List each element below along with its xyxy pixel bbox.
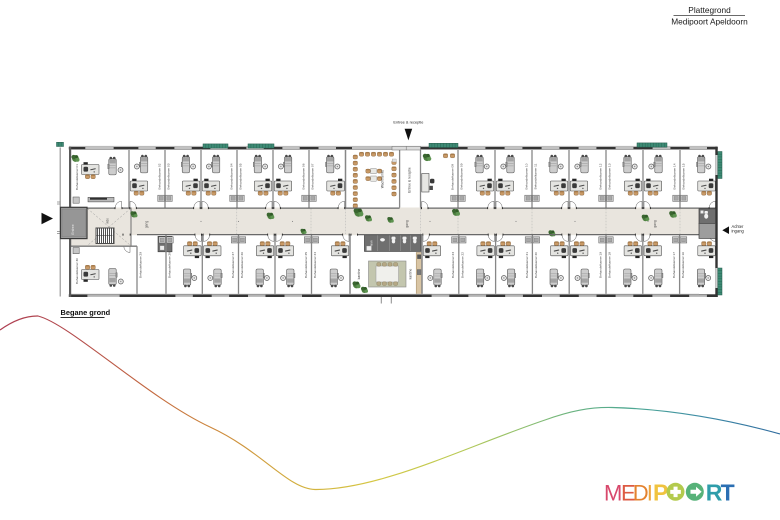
svg-text:T: T — [721, 480, 735, 506]
svg-text:Behandelkamer 08: Behandelkamer 08 — [451, 164, 455, 190]
svg-text:vide: vide — [106, 218, 110, 224]
svg-text:gang: gang — [145, 221, 149, 229]
svg-text:Behandelkamer 21: Behandelkamer 21 — [525, 252, 529, 278]
svg-text:Behandelkamer 27: Behandelkamer 27 — [231, 252, 235, 278]
svg-text:Behandelkamer 12: Behandelkamer 12 — [598, 163, 602, 189]
svg-text:Behandelkamer 28: Behandelkamer 28 — [168, 252, 172, 278]
svg-text:Behandelkamer 23: Behandelkamer 23 — [451, 252, 455, 278]
svg-text:MIVA: MIVA — [371, 240, 374, 246]
svg-text:Behandelkamer 14: Behandelkamer 14 — [672, 163, 676, 189]
svg-text:I: I — [647, 481, 653, 506]
svg-text:Behandelkamer 19: Behandelkamer 19 — [598, 252, 602, 278]
svg-text:Behandelkamer 02: Behandelkamer 02 — [157, 163, 161, 189]
svg-text:Behandelkamer 05: Behandelkamer 05 — [239, 163, 243, 189]
svg-text:Begane grond: Begane grond — [61, 308, 111, 317]
svg-text:Behandelkamer 24: Behandelkamer 24 — [313, 252, 317, 278]
svg-text:Behandelkamer 15: Behandelkamer 15 — [682, 163, 686, 189]
svg-text:Behandelkamer 01: Behandelkamer 01 — [75, 164, 79, 190]
svg-text:gang: gang — [653, 220, 657, 228]
svg-text:Behandelkamer 30: Behandelkamer 30 — [75, 258, 79, 284]
svg-text:Behandelkamer 25: Behandelkamer 25 — [304, 252, 308, 278]
svg-text:Behandelkamer 17: Behandelkamer 17 — [672, 252, 676, 278]
svg-text:Medipoort Apeldoorn: Medipoort Apeldoorn — [671, 17, 748, 27]
svg-text:gang: gang — [405, 220, 409, 228]
svg-text:Behandelkamer 29: Behandelkamer 29 — [139, 252, 143, 278]
svg-text:Behandelkamer 11: Behandelkamer 11 — [534, 163, 538, 189]
svg-text:Behandelkamer 07: Behandelkamer 07 — [311, 163, 315, 189]
svg-text:M: M — [604, 481, 622, 506]
svg-text:Behandelkamer 09: Behandelkamer 09 — [460, 163, 464, 189]
svg-text:kantine: kantine — [409, 269, 413, 280]
svg-text:Behandelkamer 26: Behandelkamer 26 — [240, 252, 244, 278]
svg-text:kantine: kantine — [357, 269, 361, 280]
svg-text:Wachtruimte: Wachtruimte — [381, 170, 385, 189]
svg-text:P: P — [653, 480, 668, 506]
svg-text:Entree & receptie: Entree & receptie — [408, 167, 412, 193]
svg-text:Behandelkamer 22: Behandelkamer 22 — [460, 252, 464, 278]
svg-text:Behandelkamer 20: Behandelkamer 20 — [534, 252, 538, 278]
svg-text:Entree & receptie: Entree & receptie — [393, 119, 423, 124]
svg-text:Behandelkamer 10: Behandelkamer 10 — [524, 163, 528, 189]
svg-text:Behandelkamer 03: Behandelkamer 03 — [167, 163, 171, 189]
svg-text:Behandelkamer 04: Behandelkamer 04 — [229, 163, 233, 189]
svg-text:Behandelkamer 18: Behandelkamer 18 — [608, 252, 612, 278]
svg-text:Behandelkamer 16: Behandelkamer 16 — [681, 252, 685, 278]
svg-text:Behandelkamer 06: Behandelkamer 06 — [301, 163, 305, 189]
svg-text:Behandelkamer 13: Behandelkamer 13 — [608, 163, 612, 189]
svg-text:Plattegrond: Plattegrond — [688, 5, 731, 15]
svg-text:ingang: ingang — [732, 229, 745, 234]
svg-text:Entree: Entree — [71, 224, 75, 234]
